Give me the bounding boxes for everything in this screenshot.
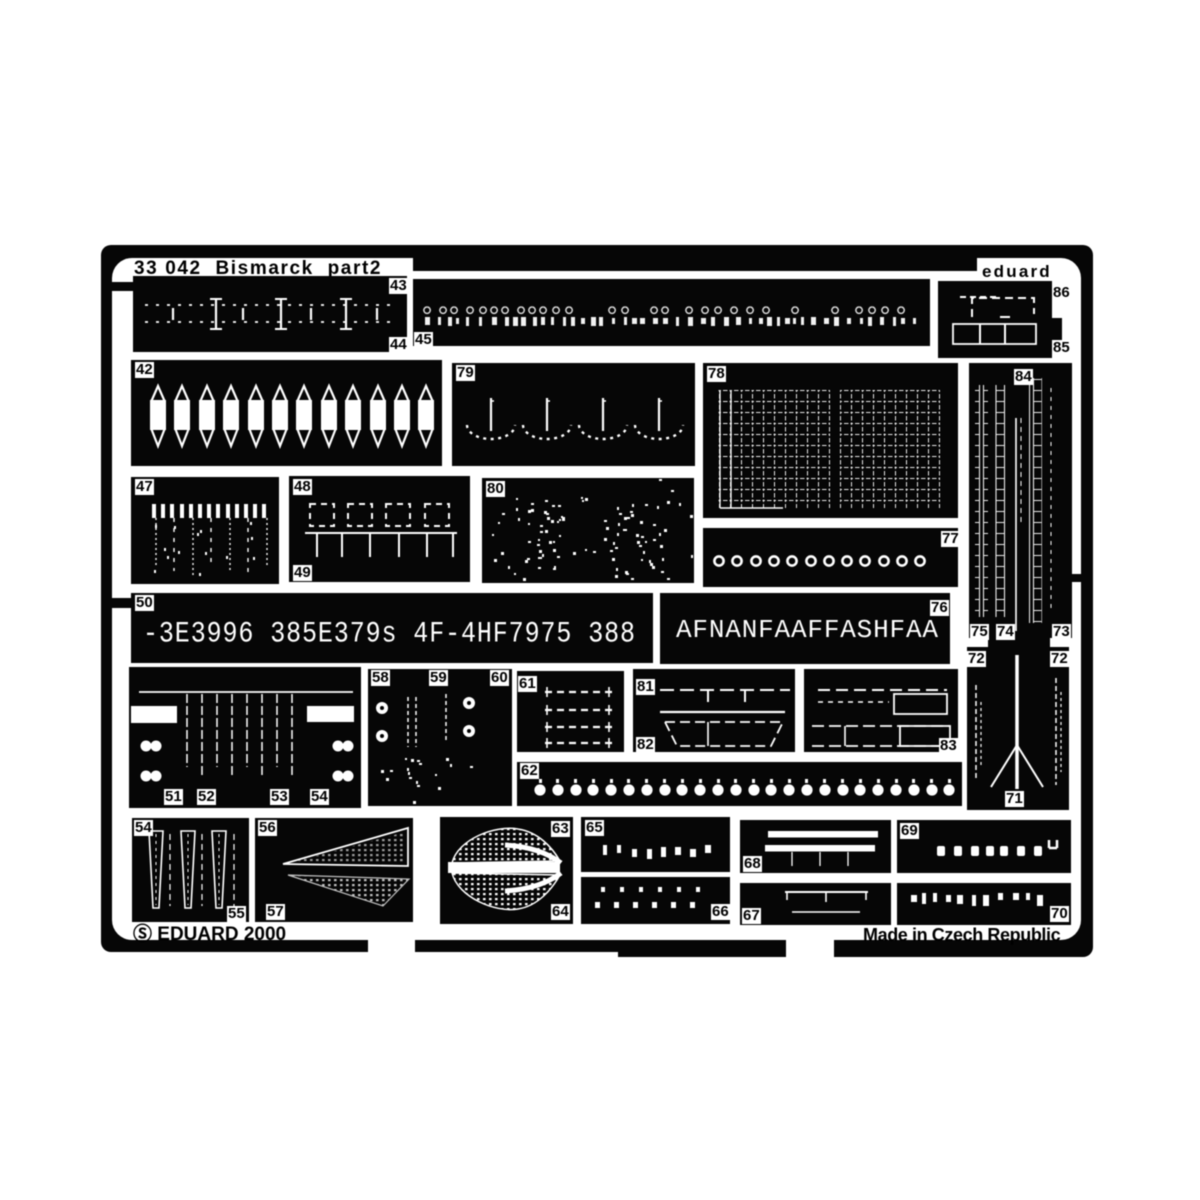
- svg-text:AFNANFAAFFASHFAA: AFNANFAAFFASHFAA: [676, 615, 938, 645]
- svg-text:-3E3996 385E379s 4F-4HF7975 38: -3E3996 385E379s 4F-4HF7975 388: [143, 618, 635, 651]
